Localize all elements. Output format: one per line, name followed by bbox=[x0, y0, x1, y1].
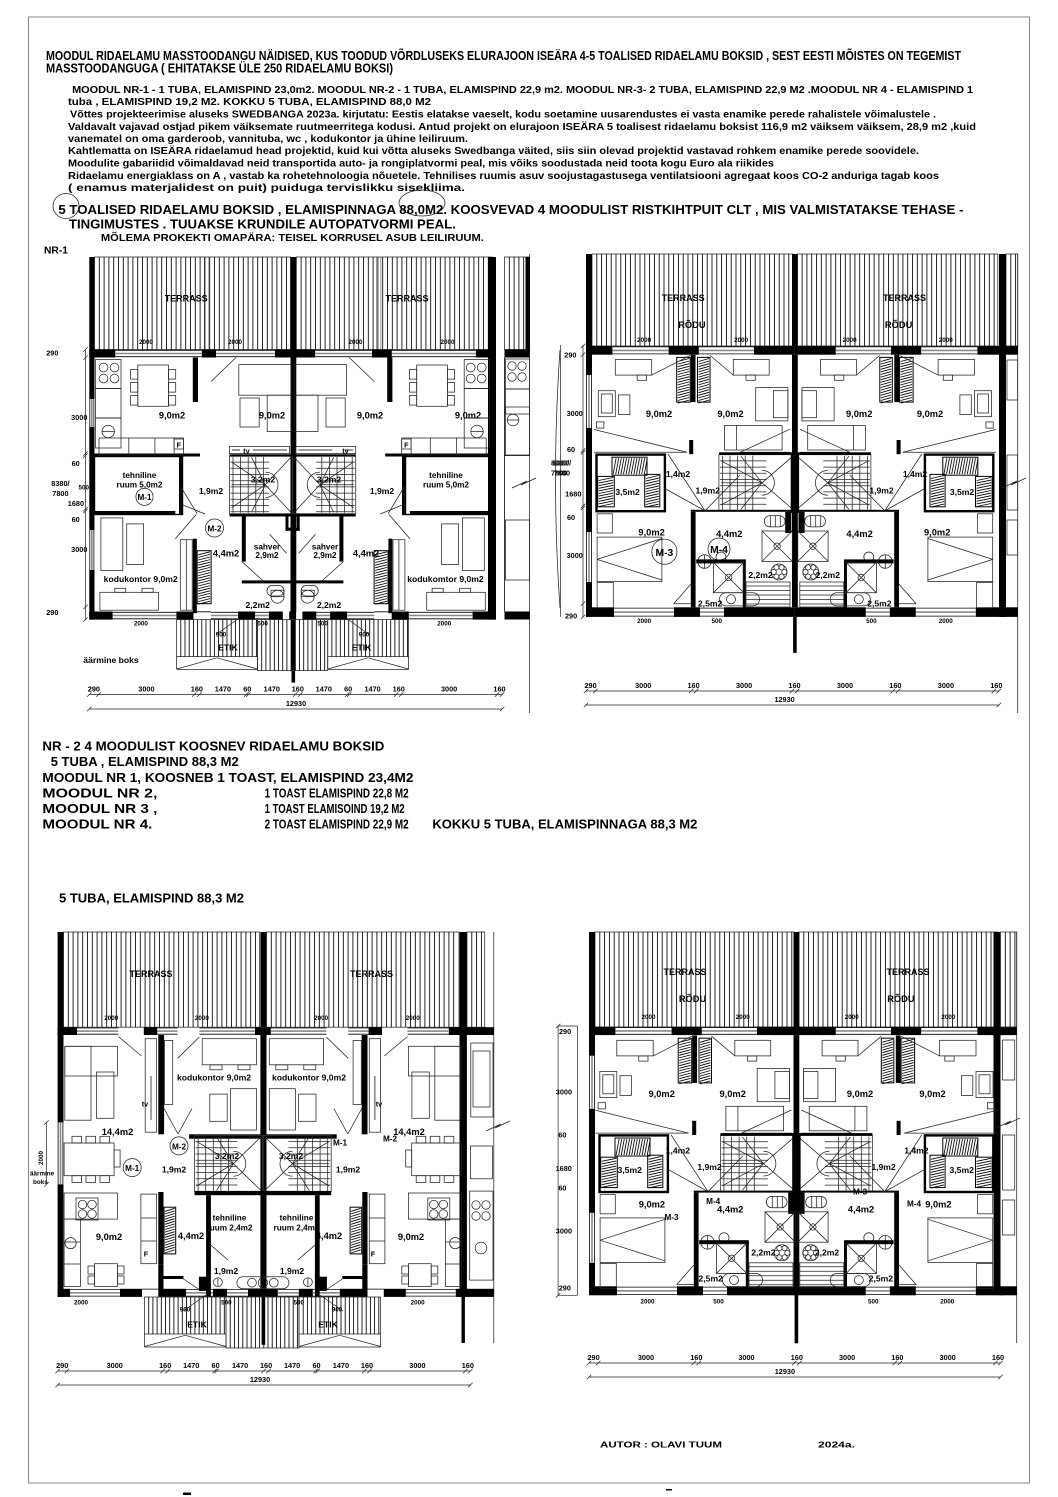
svg-text:4,4m2: 4,4m2 bbox=[846, 529, 872, 539]
svg-text:1680: 1680 bbox=[68, 499, 84, 508]
svg-text:3000: 3000 bbox=[441, 685, 457, 694]
svg-text:60: 60 bbox=[558, 1183, 566, 1192]
svg-text:1 TOAST ELAMISPIND 22,8 M2: 1 TOAST ELAMISPIND 22,8 M2 bbox=[265, 785, 409, 800]
svg-text:900: 900 bbox=[332, 1307, 343, 1314]
svg-text:2000: 2000 bbox=[411, 1300, 426, 1307]
svg-text:tehniline: tehniline bbox=[213, 1214, 247, 1223]
svg-text:4,4m2: 4,4m2 bbox=[213, 548, 239, 558]
svg-text:2000: 2000 bbox=[637, 337, 652, 344]
svg-text:7800: 7800 bbox=[52, 489, 68, 498]
svg-text:2000: 2000 bbox=[406, 1015, 421, 1022]
svg-text:3,2m2: 3,2m2 bbox=[279, 1151, 304, 1161]
svg-text:kodukontor 9,0m2: kodukontor 9,0m2 bbox=[177, 1073, 251, 1083]
svg-text:3000: 3000 bbox=[71, 545, 87, 554]
svg-text:9,0m2: 9,0m2 bbox=[847, 1089, 873, 1099]
svg-text:TERRASS: TERRASS bbox=[883, 293, 926, 303]
svg-text:M-3: M-3 bbox=[656, 548, 674, 559]
svg-text:900: 900 bbox=[216, 631, 227, 638]
svg-text:2000: 2000 bbox=[941, 1014, 956, 1021]
svg-text:9,0m2: 9,0m2 bbox=[455, 411, 481, 421]
svg-text:F: F bbox=[371, 1250, 376, 1259]
svg-text:tehniline: tehniline bbox=[280, 1214, 314, 1223]
svg-text:290: 290 bbox=[46, 349, 58, 358]
svg-text:290: 290 bbox=[88, 685, 100, 694]
svg-text:( enamus materjalidest on puit: ( enamus materjalidest on puit) puiduga … bbox=[68, 183, 465, 194]
svg-text:2,2m2: 2,2m2 bbox=[751, 1248, 776, 1258]
svg-text:tehniline: tehniline bbox=[429, 471, 463, 480]
svg-text:500: 500 bbox=[713, 1298, 724, 1305]
svg-text:2000: 2000 bbox=[637, 618, 652, 625]
svg-text:2,5m2: 2,5m2 bbox=[869, 1273, 894, 1283]
svg-text:3000: 3000 bbox=[409, 1361, 425, 1370]
svg-text:3000: 3000 bbox=[567, 409, 583, 418]
svg-text:9,0m2: 9,0m2 bbox=[649, 1089, 675, 1099]
svg-text:2000: 2000 bbox=[74, 1300, 89, 1307]
svg-text:2000: 2000 bbox=[348, 339, 363, 346]
svg-text:160: 160 bbox=[990, 681, 1002, 690]
svg-text:500: 500 bbox=[257, 621, 268, 628]
svg-text:ETIK: ETIK bbox=[218, 643, 238, 653]
svg-text:500: 500 bbox=[317, 621, 328, 628]
svg-text:1470: 1470 bbox=[333, 1361, 349, 1370]
svg-text:2000: 2000 bbox=[437, 621, 452, 628]
svg-text:1,9m2: 1,9m2 bbox=[869, 486, 894, 496]
svg-text:MOODUL NR 4.: MOODUL NR 4. bbox=[42, 817, 152, 832]
svg-text:2000: 2000 bbox=[843, 337, 858, 344]
svg-text:2000: 2000 bbox=[845, 1014, 860, 1021]
svg-text:tv: tv bbox=[142, 1100, 149, 1109]
svg-text:2,9m2: 2,9m2 bbox=[313, 551, 337, 560]
svg-text:M-1: M-1 bbox=[137, 493, 152, 502]
svg-text:4,4m2: 4,4m2 bbox=[178, 1231, 204, 1241]
svg-text:1680: 1680 bbox=[565, 490, 581, 499]
svg-text:2,2m2: 2,2m2 bbox=[816, 570, 841, 580]
svg-text:160: 160 bbox=[361, 1361, 373, 1370]
svg-text:500: 500 bbox=[712, 618, 723, 625]
svg-text:1,4m2: 1,4m2 bbox=[666, 1146, 691, 1156]
svg-text:2024a.: 2024a. bbox=[818, 1440, 855, 1450]
svg-text:3000: 3000 bbox=[107, 1361, 123, 1370]
svg-text:2 TOAST ELAMISPIND 22,9 M2: 2 TOAST ELAMISPIND 22,9 M2 bbox=[265, 817, 409, 832]
svg-text:1,4m2: 1,4m2 bbox=[666, 469, 691, 479]
svg-text:2000: 2000 bbox=[736, 1014, 751, 1021]
svg-text:9,0m2: 9,0m2 bbox=[639, 1200, 665, 1210]
svg-text:3000: 3000 bbox=[635, 681, 651, 690]
svg-text:tv: tv bbox=[342, 446, 349, 455]
svg-text:2,5m2: 2,5m2 bbox=[698, 599, 723, 609]
svg-text:3000: 3000 bbox=[567, 551, 583, 560]
svg-text:1470: 1470 bbox=[316, 685, 332, 694]
svg-text:AUTOR : OLAVI TUUM: AUTOR : OLAVI TUUM bbox=[600, 1440, 722, 1450]
svg-text:2,2m2: 2,2m2 bbox=[317, 600, 342, 610]
svg-text:160: 160 bbox=[690, 1353, 702, 1362]
svg-text:12930: 12930 bbox=[286, 699, 306, 708]
svg-text:60: 60 bbox=[212, 1361, 220, 1370]
svg-text:9,0m2: 9,0m2 bbox=[357, 411, 383, 421]
svg-text:160: 160 bbox=[889, 681, 901, 690]
svg-text:8380/: 8380/ bbox=[553, 459, 571, 468]
svg-text:2000: 2000 bbox=[940, 1298, 955, 1305]
svg-text:2000: 2000 bbox=[139, 339, 154, 346]
svg-text:2,2m2: 2,2m2 bbox=[246, 600, 271, 610]
svg-text:160: 160 bbox=[788, 681, 800, 690]
svg-text:3,2m2: 3,2m2 bbox=[215, 1151, 240, 1161]
svg-text:60: 60 bbox=[312, 1361, 320, 1370]
svg-text:2000: 2000 bbox=[314, 1015, 329, 1022]
svg-text:290: 290 bbox=[46, 608, 58, 617]
svg-text:2000: 2000 bbox=[104, 1015, 119, 1022]
svg-text:RÕDU: RÕDU bbox=[885, 320, 913, 330]
svg-text:M-2: M-2 bbox=[207, 524, 222, 533]
svg-text:TERRASS: TERRASS bbox=[350, 969, 393, 979]
svg-text:500: 500 bbox=[866, 618, 877, 625]
svg-text:9,0m2: 9,0m2 bbox=[925, 1200, 951, 1210]
svg-text:500: 500 bbox=[221, 1300, 232, 1307]
svg-text:500: 500 bbox=[868, 1298, 879, 1305]
svg-text:3000: 3000 bbox=[71, 413, 87, 422]
svg-text:9,0m2: 9,0m2 bbox=[919, 1089, 945, 1099]
svg-text:M-2: M-2 bbox=[172, 1143, 187, 1152]
svg-text:2000: 2000 bbox=[939, 618, 954, 625]
svg-text:RÕDU: RÕDU bbox=[887, 994, 915, 1004]
svg-text:1,9m2: 1,9m2 bbox=[280, 1266, 305, 1276]
svg-text:12930: 12930 bbox=[775, 1367, 795, 1376]
svg-text:3,2m2: 3,2m2 bbox=[317, 474, 342, 484]
svg-text:9,0m2: 9,0m2 bbox=[924, 528, 950, 538]
svg-text:1470: 1470 bbox=[183, 1361, 199, 1370]
svg-text:kodukontor 9,0m2: kodukontor 9,0m2 bbox=[272, 1073, 346, 1083]
svg-text:2000: 2000 bbox=[228, 339, 243, 346]
svg-text:TERRASS: TERRASS bbox=[662, 293, 705, 303]
svg-text:ETIK: ETIK bbox=[187, 1320, 207, 1330]
svg-text:ruum 5,0m2: ruum 5,0m2 bbox=[423, 481, 469, 490]
svg-text:1470: 1470 bbox=[264, 685, 280, 694]
svg-text:4,4m2: 4,4m2 bbox=[717, 1204, 743, 1214]
svg-text:kodukomtor 9,0m2: kodukomtor 9,0m2 bbox=[407, 574, 484, 584]
svg-text:4,4m2: 4,4m2 bbox=[353, 548, 379, 558]
svg-text:3000: 3000 bbox=[839, 1353, 855, 1362]
svg-text:9,0m2: 9,0m2 bbox=[159, 411, 185, 421]
svg-text:900: 900 bbox=[359, 631, 370, 638]
svg-text:1,9m2: 1,9m2 bbox=[871, 1162, 896, 1172]
svg-text:2000: 2000 bbox=[640, 1298, 655, 1305]
svg-text:290: 290 bbox=[559, 1027, 571, 1036]
svg-text:4,4m2: 4,4m2 bbox=[716, 529, 742, 539]
svg-text:2,2m2: 2,2m2 bbox=[748, 570, 773, 580]
svg-text:M-4: M-4 bbox=[907, 1200, 922, 1209]
svg-text:Kahtlematta on ISEÄRA ridaela: Kahtlematta on ISEÄRA ridaelamud head pr… bbox=[68, 144, 919, 157]
svg-text:1,9m2: 1,9m2 bbox=[214, 1266, 239, 1276]
svg-text:160: 160 bbox=[462, 1361, 474, 1370]
svg-text:290: 290 bbox=[56, 1361, 68, 1370]
svg-text:3000: 3000 bbox=[938, 681, 954, 690]
svg-text:1,9m2: 1,9m2 bbox=[199, 486, 224, 496]
svg-text:2,9m2: 2,9m2 bbox=[255, 551, 279, 560]
svg-text:1,4m2: 1,4m2 bbox=[903, 469, 928, 479]
svg-text:M-2: M-2 bbox=[383, 1135, 398, 1144]
svg-text:1,9m2: 1,9m2 bbox=[697, 1162, 722, 1172]
svg-text:9,0m2: 9,0m2 bbox=[646, 409, 672, 419]
svg-text:9,0m2: 9,0m2 bbox=[96, 1232, 122, 1242]
svg-text:M-3: M-3 bbox=[853, 1187, 868, 1196]
svg-text:MOODUL NR 3 ,: MOODUL NR 3 , bbox=[42, 801, 157, 816]
svg-text:1,9m2: 1,9m2 bbox=[162, 1165, 187, 1175]
svg-text:3,5m2: 3,5m2 bbox=[615, 487, 640, 497]
svg-text:MOODUL NR-1 - 1 TUBA, ELAMISPI: MOODUL NR-1 - 1 TUBA, ELAMISPIND 23,0m2.… bbox=[72, 85, 973, 96]
svg-text:290: 290 bbox=[564, 351, 576, 360]
svg-text:500: 500 bbox=[293, 1300, 304, 1307]
svg-text:vanematel on oma garderoob, va: vanematel on oma garderoob, vannituba, w… bbox=[68, 134, 468, 145]
svg-text:5 TUBA, ELAMISPIND 88,3 M2: 5 TUBA, ELAMISPIND 88,3 M2 bbox=[59, 891, 244, 906]
svg-text:500: 500 bbox=[78, 485, 89, 492]
svg-text:3000: 3000 bbox=[556, 1227, 572, 1236]
svg-text:2,5m2: 2,5m2 bbox=[699, 1273, 724, 1283]
svg-text:160: 160 bbox=[260, 1361, 272, 1370]
svg-text:2000: 2000 bbox=[134, 621, 149, 628]
svg-text:1,9m2: 1,9m2 bbox=[370, 486, 395, 496]
svg-text:2000: 2000 bbox=[38, 1151, 45, 1166]
svg-text:M-1: M-1 bbox=[125, 1164, 140, 1173]
svg-text:160: 160 bbox=[393, 685, 405, 694]
svg-text:ruum 2,4m2: ruum 2,4m2 bbox=[274, 1223, 320, 1232]
svg-text:1470: 1470 bbox=[284, 1361, 300, 1370]
svg-text:290: 290 bbox=[588, 1353, 600, 1362]
svg-text:160: 160 bbox=[688, 681, 700, 690]
svg-text:tv: tv bbox=[376, 1100, 383, 1109]
svg-text:3,5m2: 3,5m2 bbox=[950, 1165, 975, 1175]
svg-text:TERRASS: TERRASS bbox=[887, 967, 930, 977]
svg-text:ETIK: ETIK bbox=[318, 1320, 338, 1330]
svg-text:5 TUBA , ELAMISPIND 88,3 M2: 5 TUBA , ELAMISPIND 88,3 M2 bbox=[51, 754, 239, 769]
svg-text:ETIK: ETIK bbox=[352, 643, 372, 653]
svg-text:RÕDU: RÕDU bbox=[679, 994, 707, 1004]
svg-text:290: 290 bbox=[565, 612, 577, 621]
svg-text:2,5m2: 2,5m2 bbox=[867, 599, 892, 609]
svg-text:3000: 3000 bbox=[638, 1353, 654, 1362]
svg-text:MASSTOODANGUGA ( EHITATAKSE ÜL: MASSTOODANGUGA ( EHITATAKSE ÜLE 250 RIDA… bbox=[46, 60, 393, 75]
svg-text:5 TOALISED RIDAELAMU BOKSID ,: 5 TOALISED RIDAELAMU BOKSID , ELAMISPINN… bbox=[58, 202, 963, 217]
svg-text:äärmine: äärmine bbox=[30, 1171, 55, 1178]
svg-text:14,4m2: 14,4m2 bbox=[393, 1127, 425, 1137]
svg-text:3,5m2: 3,5m2 bbox=[618, 1165, 643, 1175]
svg-text:9,0m2: 9,0m2 bbox=[846, 409, 872, 419]
svg-text:MOODUL NR 2,: MOODUL NR 2, bbox=[42, 785, 157, 800]
svg-text:2,2m2: 2,2m2 bbox=[815, 1248, 840, 1258]
svg-text:1470: 1470 bbox=[215, 685, 231, 694]
svg-text:2000: 2000 bbox=[734, 337, 749, 344]
svg-text:8380/: 8380/ bbox=[51, 479, 69, 488]
svg-text:160: 160 bbox=[493, 685, 505, 694]
svg-text:7800: 7800 bbox=[554, 469, 570, 478]
svg-text:NR - 2 4 MOODULIST KOOSNEV RI: NR - 2 4 MOODULIST KOOSNEV RIDAELAMU BOK… bbox=[42, 739, 384, 754]
svg-text:TERRASS: TERRASS bbox=[386, 294, 429, 304]
svg-text:RÕDU: RÕDU bbox=[678, 320, 706, 330]
svg-text:M-1: M-1 bbox=[333, 1139, 348, 1148]
svg-text:9,0m2: 9,0m2 bbox=[717, 409, 743, 419]
svg-text:tuba , ELAMISPIND 19,2 M2: tuba , ELAMISPIND 19,2 M2. KOKKU 5 TUBA,… bbox=[68, 97, 431, 108]
svg-text:äärmine boks: äärmine boks bbox=[83, 655, 139, 665]
svg-text:2000: 2000 bbox=[939, 337, 954, 344]
svg-text:160: 160 bbox=[191, 685, 203, 694]
svg-text:160: 160 bbox=[891, 1353, 903, 1362]
svg-text:60: 60 bbox=[72, 515, 80, 524]
svg-text:Võttes projekteerimise aluseks: Võttes projekteerimise aluseks SWEDBANGA… bbox=[70, 110, 936, 121]
svg-text:3000: 3000 bbox=[556, 1088, 572, 1097]
svg-text:3000: 3000 bbox=[738, 1353, 754, 1362]
svg-text:3000: 3000 bbox=[837, 681, 853, 690]
svg-text:ruum 2,4m2: ruum 2,4m2 bbox=[207, 1223, 253, 1232]
svg-text:tv: tv bbox=[243, 446, 250, 455]
svg-text:12930: 12930 bbox=[774, 695, 794, 704]
svg-text:1470: 1470 bbox=[232, 1361, 248, 1370]
svg-text:160: 160 bbox=[292, 685, 304, 694]
svg-text:60: 60 bbox=[243, 685, 251, 694]
svg-text:2000: 2000 bbox=[641, 1014, 656, 1021]
svg-text:290: 290 bbox=[585, 681, 597, 690]
svg-text:60: 60 bbox=[344, 685, 352, 694]
svg-text:1,9m2: 1,9m2 bbox=[336, 1165, 361, 1175]
svg-text:60: 60 bbox=[567, 445, 575, 454]
svg-text:3,2m2: 3,2m2 bbox=[251, 474, 276, 484]
svg-text:M-4: M-4 bbox=[710, 545, 728, 556]
svg-text:3000: 3000 bbox=[940, 1353, 956, 1362]
svg-text:Ridaelamu energiaklass on A ,: Ridaelamu energiaklass on A , vastab ka … bbox=[68, 171, 939, 182]
svg-text:TERRASS: TERRASS bbox=[664, 967, 707, 977]
svg-text:kodukontor 9,0m2: kodukontor 9,0m2 bbox=[104, 574, 178, 584]
svg-text:3000: 3000 bbox=[138, 685, 154, 694]
svg-text:1,4m2: 1,4m2 bbox=[904, 1146, 929, 1156]
svg-text:F: F bbox=[144, 1250, 149, 1259]
svg-text:2000: 2000 bbox=[440, 339, 455, 346]
svg-text:9,0m2: 9,0m2 bbox=[398, 1232, 424, 1242]
svg-text:Valdavalt vajavad ostjad pike: Valdavalt vajavad ostjad pikem väiksemat… bbox=[68, 120, 976, 133]
svg-text:1470: 1470 bbox=[364, 685, 380, 694]
svg-text:tehniline: tehniline bbox=[123, 471, 157, 480]
svg-text:KOKKU 5 TUBA, ELAMISPINNAGA 88: KOKKU 5 TUBA, ELAMISPINNAGA 88,3 M2 bbox=[432, 817, 697, 832]
svg-text:TERRASS: TERRASS bbox=[165, 294, 208, 304]
svg-text:9,0m2: 9,0m2 bbox=[259, 411, 285, 421]
svg-text:F: F bbox=[404, 441, 409, 450]
svg-text:M-3: M-3 bbox=[664, 1213, 679, 1222]
svg-text:3,5m2: 3,5m2 bbox=[950, 487, 975, 497]
svg-text:F: F bbox=[177, 441, 182, 450]
svg-text:290: 290 bbox=[559, 1283, 571, 1292]
svg-text:2000: 2000 bbox=[195, 1015, 210, 1022]
svg-text:9,0m2: 9,0m2 bbox=[720, 1089, 746, 1099]
svg-text:60: 60 bbox=[567, 513, 575, 522]
svg-text:60: 60 bbox=[72, 459, 80, 468]
svg-text:9,0m2: 9,0m2 bbox=[917, 409, 943, 419]
svg-text:1 TOAST ELAMISOIND 19,2 M2: 1 TOAST ELAMISOIND 19,2 M2 bbox=[265, 801, 405, 816]
svg-text:MOODUL NR 1, KOOSNEB 1 TOAST,: MOODUL NR 1, KOOSNEB 1 TOAST, ELAMISPIND… bbox=[42, 770, 413, 785]
svg-text:4,4m2: 4,4m2 bbox=[848, 1204, 874, 1214]
svg-text:12930: 12930 bbox=[250, 1375, 270, 1384]
svg-text:1680: 1680 bbox=[556, 1164, 572, 1173]
svg-text:900: 900 bbox=[180, 1307, 191, 1314]
svg-text:ruum 5,0m2: ruum 5,0m2 bbox=[117, 481, 163, 490]
svg-text:1,9m2: 1,9m2 bbox=[696, 486, 721, 496]
svg-text:60: 60 bbox=[558, 1131, 566, 1140]
svg-text:160: 160 bbox=[791, 1353, 803, 1362]
svg-text:14,4m2: 14,4m2 bbox=[102, 1127, 134, 1137]
svg-text:3000: 3000 bbox=[736, 681, 752, 690]
svg-text:NR-1: NR-1 bbox=[44, 246, 68, 257]
svg-text:TINGIMUSTES . TUUAKSE KRUNDILE: TINGIMUSTES . TUUAKSE KRUNDILE AUTOPATVO… bbox=[69, 217, 456, 232]
svg-text:MÕLEMA PROKEKTI OMAPÄRA: TEIS: MÕLEMA PROKEKTI OMAPÄRA: TEISEL KORRUSEL… bbox=[101, 233, 484, 244]
svg-text:160: 160 bbox=[992, 1353, 1004, 1362]
svg-text:160: 160 bbox=[159, 1361, 171, 1370]
svg-text:TERRASS: TERRASS bbox=[130, 969, 173, 979]
svg-text:4,4m2: 4,4m2 bbox=[316, 1231, 342, 1241]
svg-text:Moodulite gabariidid võimaldav: Moodulite gabariidid võimaldavad neid tr… bbox=[68, 159, 774, 170]
svg-text:9,0m2: 9,0m2 bbox=[638, 528, 664, 538]
